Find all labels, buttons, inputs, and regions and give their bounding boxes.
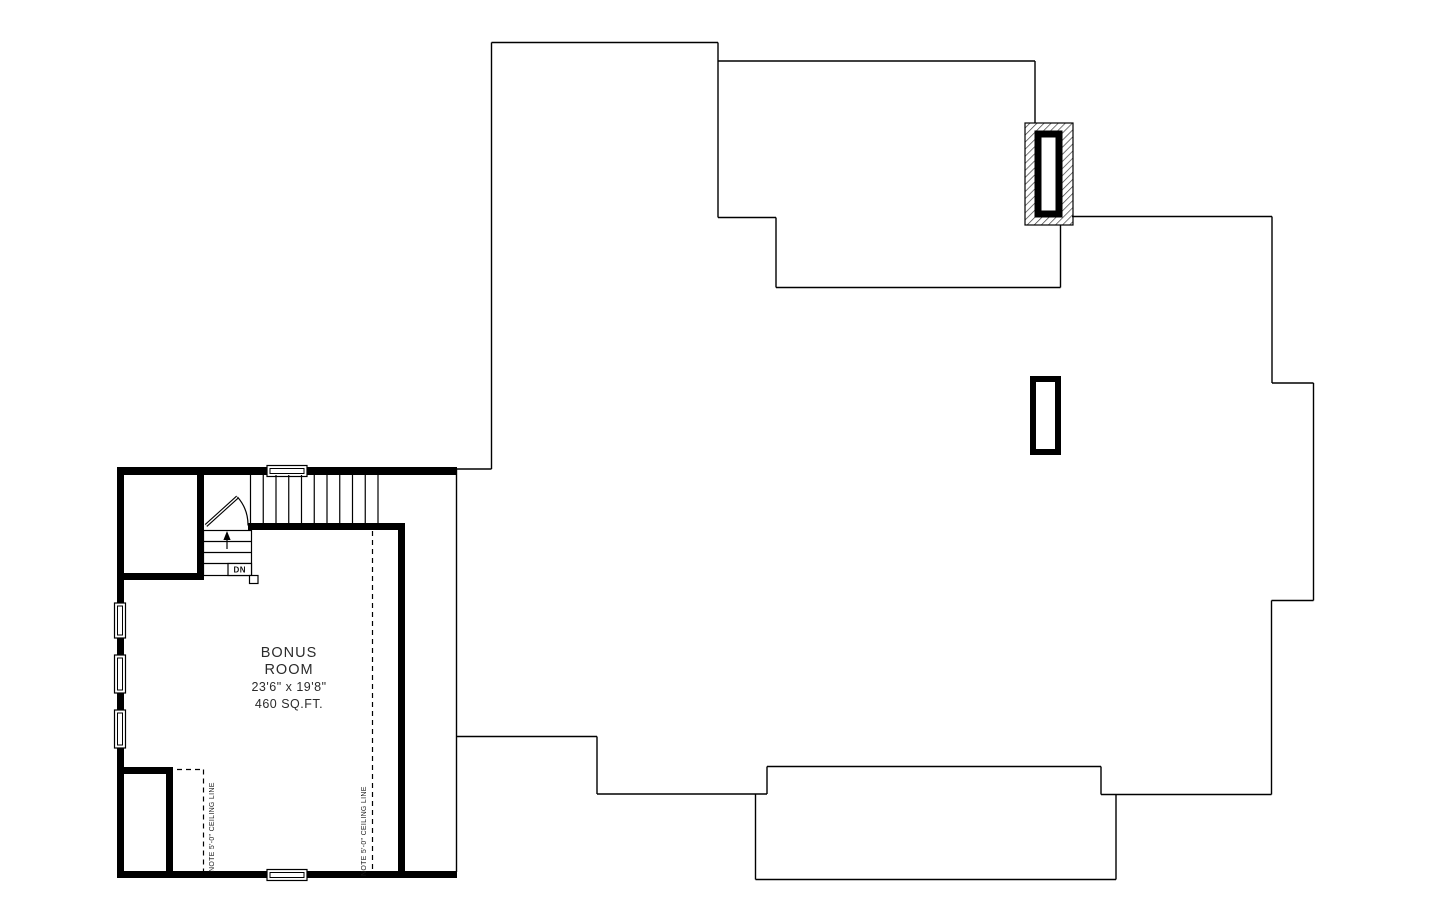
room-name-line1: BONUS <box>261 645 318 661</box>
room-area: 460 SQ.FT. <box>255 697 323 711</box>
left-window-1 <box>115 603 126 638</box>
ceiling-note-left: NOTE 5'-0" CEILING LINE <box>209 782 216 872</box>
top-window <box>267 466 307 477</box>
ceiling-note-right: NOTE 5'-0" CEILING LINE <box>361 786 368 876</box>
top-wall-left-segment <box>117 467 267 475</box>
stair-bottom-wall <box>248 523 405 530</box>
landing-door <box>206 497 248 526</box>
stair-direction-arrow-head <box>223 531 230 540</box>
room-dimensions: 23'6" x 19'8" <box>251 680 326 694</box>
top-wall-right-segment <box>307 467 457 475</box>
lower-roof-bay-outline <box>756 794 1117 880</box>
ceiling-line-left <box>177 770 204 872</box>
left-wall-segment-2 <box>117 638 124 655</box>
room-name-line2: ROOM <box>264 662 313 678</box>
lower-closet-top-wall <box>117 767 173 774</box>
floor-plan: DN BONUS ROOM 23'6" x 19'8" 460 SQ.FT. N… <box>0 0 1430 922</box>
chimney <box>1025 123 1073 225</box>
lower-closet-right-wall <box>166 767 173 878</box>
door-swing-arc <box>238 497 249 526</box>
stair-newel-post <box>250 576 259 584</box>
door-leaf-inner <box>206 497 238 526</box>
left-wall-upper <box>117 467 124 580</box>
chimney-firebox <box>1038 134 1059 214</box>
room-label-block: BONUS ROOM 23'6" x 19'8" 460 SQ.FT. <box>251 645 326 711</box>
left-window-3 <box>115 710 126 748</box>
stair-down-label: DN <box>234 566 247 575</box>
left-wall-segment-4 <box>117 748 124 769</box>
right-wall <box>398 523 405 878</box>
left-window-2 <box>115 655 126 693</box>
bottom-window <box>267 870 307 881</box>
left-wall-segment-3 <box>117 693 124 710</box>
left-wall-segment-1 <box>117 580 124 603</box>
flue-chase <box>1033 379 1058 452</box>
upper-stair-treads <box>251 475 379 523</box>
left-wall-lower <box>117 767 124 878</box>
floor-plan-drawing: DN BONUS ROOM 23'6" x 19'8" 460 SQ.FT. N… <box>0 0 1430 922</box>
bottom-wall-left-segment <box>117 871 267 878</box>
bottom-wall-right-segment <box>307 871 457 878</box>
roof-outline <box>457 43 1314 873</box>
closet-bottom-wall <box>117 573 204 580</box>
